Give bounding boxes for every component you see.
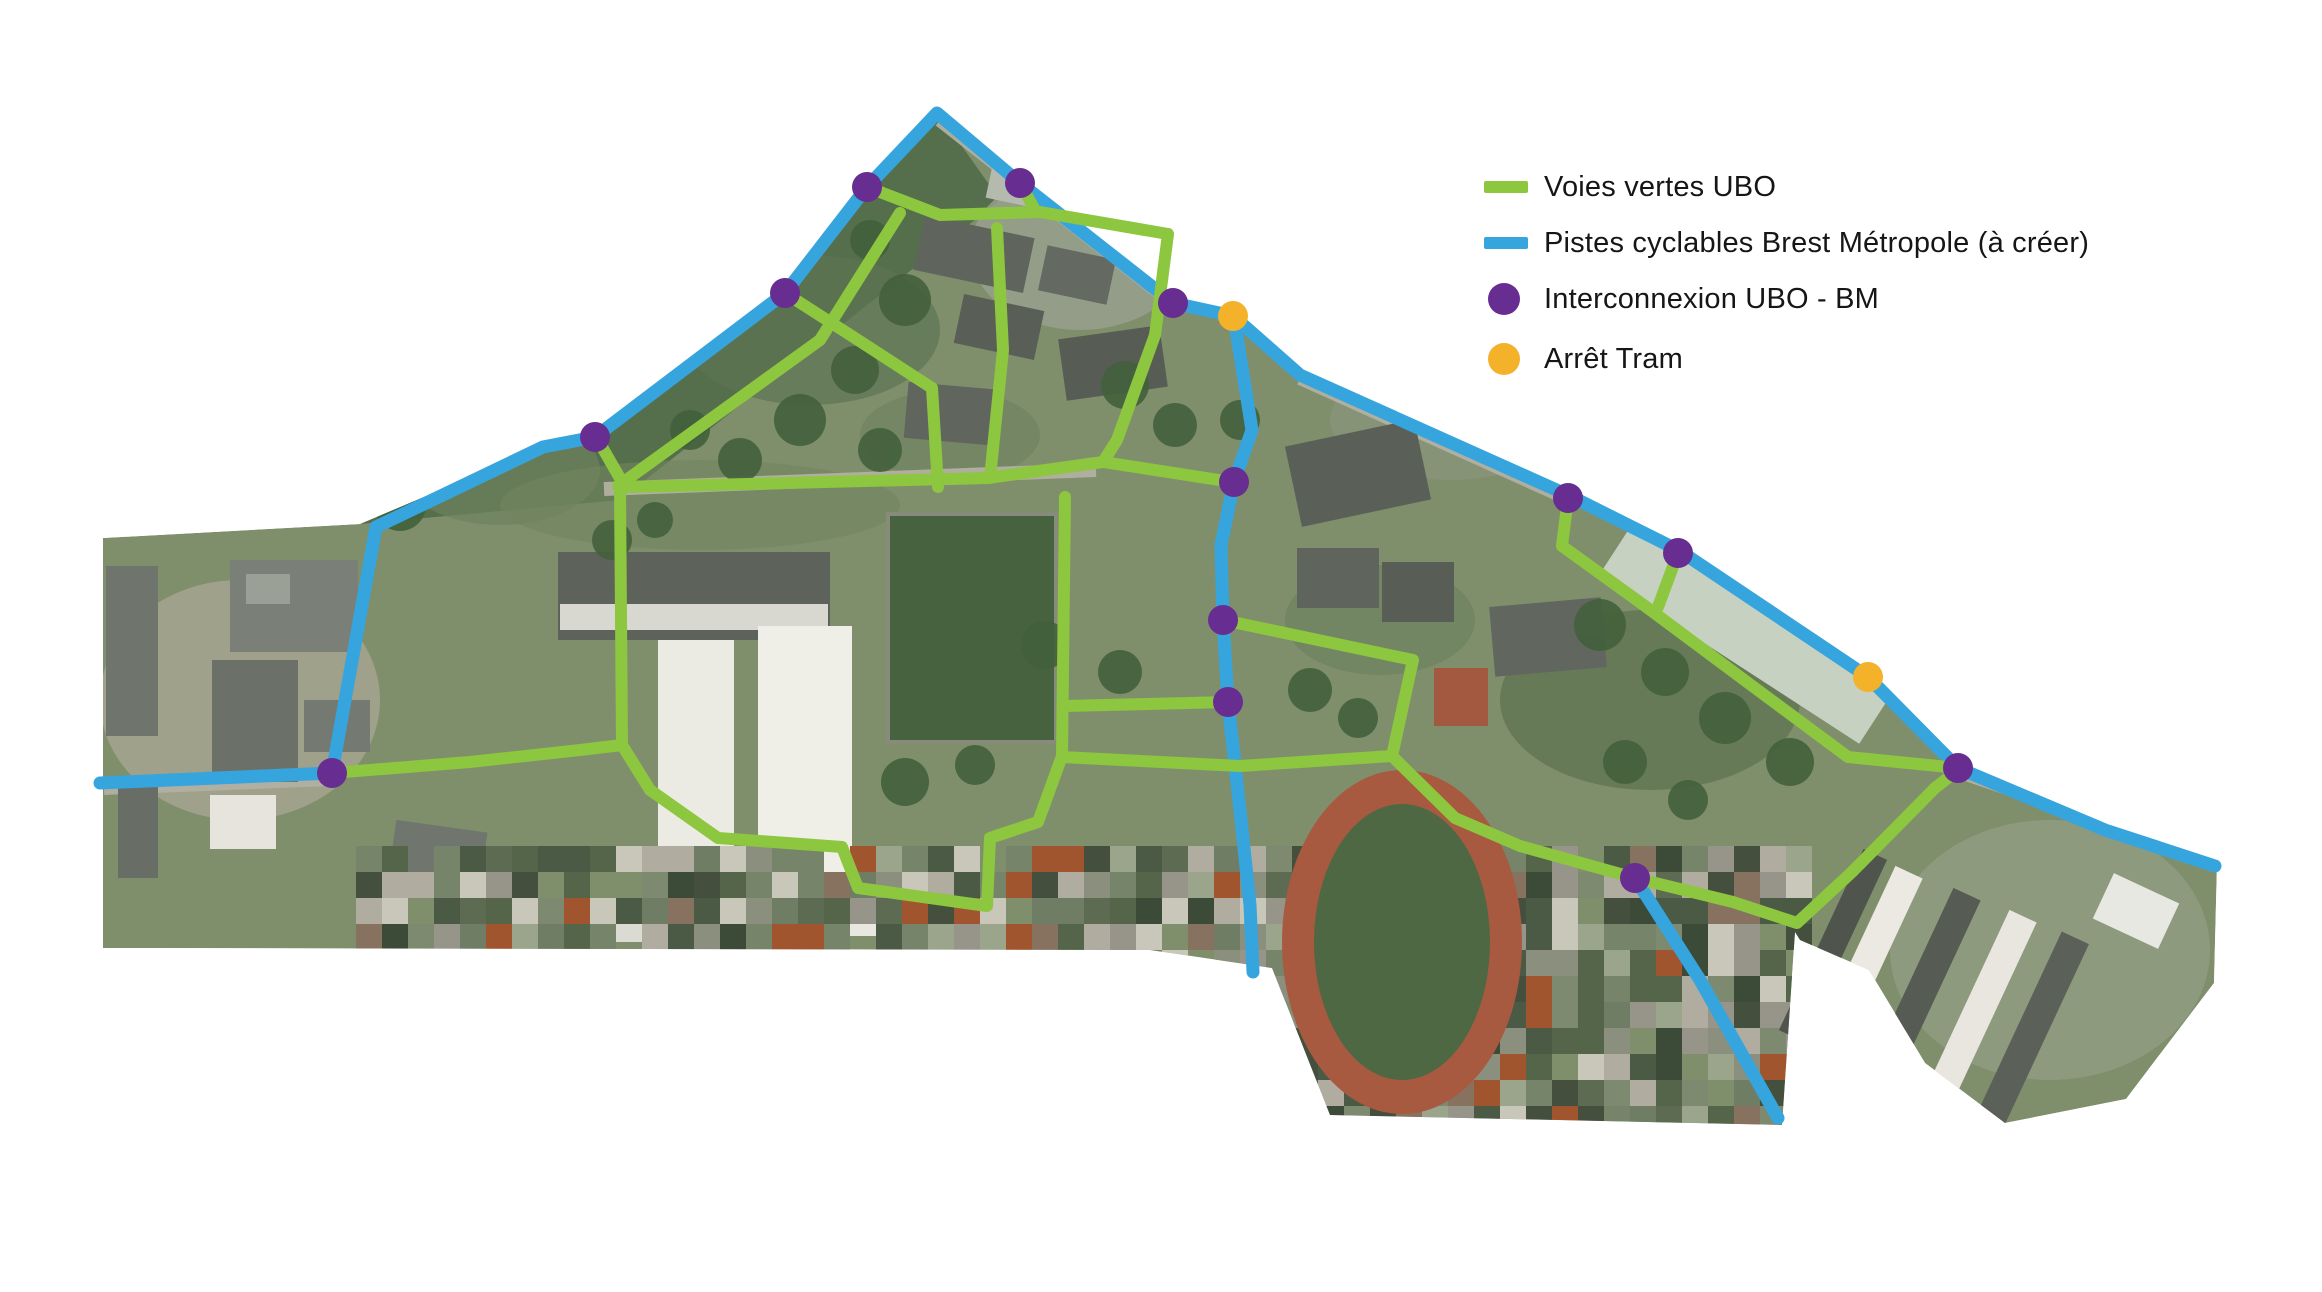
- interconnection-dot: [1158, 288, 1188, 318]
- map-legend: Voies vertes UBO Pistes cyclables Brest …: [1484, 166, 2089, 398]
- interconnection-dot: [1005, 168, 1035, 198]
- interconnection-dot: [580, 422, 610, 452]
- interconnection-dot: [1553, 483, 1583, 513]
- interconnection-dot: [1943, 753, 1973, 783]
- interconnection-dot: [1663, 538, 1693, 568]
- tram-stop-dot: [1853, 662, 1883, 692]
- interconnection-dot: [1213, 687, 1243, 717]
- interconnection-dot: [770, 278, 800, 308]
- legend-item-arret-tram: Arrêt Tram: [1484, 338, 2089, 380]
- voie-verte-segment: [1062, 497, 1065, 756]
- green-line-swatch-icon: [1484, 181, 1528, 193]
- yellow-dot-swatch-icon: [1488, 343, 1520, 375]
- voie-verte-segment: [620, 487, 622, 745]
- interconnection-dot: [1219, 467, 1249, 497]
- legend-item-interconnexion: Interconnexion UBO - BM: [1484, 278, 2089, 320]
- blue-line-swatch-icon: [1484, 237, 1528, 249]
- legend-item-pistes-cyclables: Pistes cyclables Brest Métropole (à crée…: [1484, 222, 2089, 264]
- interconnection-dot: [317, 758, 347, 788]
- legend-item-voies-vertes: Voies vertes UBO: [1484, 166, 2089, 208]
- legend-label: Arrêt Tram: [1544, 343, 1683, 376]
- legend-label: Interconnexion UBO - BM: [1544, 283, 1879, 316]
- legend-label: Voies vertes UBO: [1544, 171, 1776, 204]
- interconnection-dot: [1620, 863, 1650, 893]
- purple-dot-swatch-icon: [1488, 283, 1520, 315]
- interconnection-dot: [1208, 605, 1238, 635]
- ubo-campus-cycle-map-page: Voies vertes UBO Pistes cyclables Brest …: [0, 0, 2322, 1292]
- interconnection-dot: [852, 172, 882, 202]
- tram-stop-dot: [1218, 301, 1248, 331]
- voie-verte-segment: [1065, 702, 1228, 706]
- pixelated-mosaic-area: [356, 846, 1812, 1132]
- legend-label: Pistes cyclables Brest Métropole (à crée…: [1544, 227, 2089, 260]
